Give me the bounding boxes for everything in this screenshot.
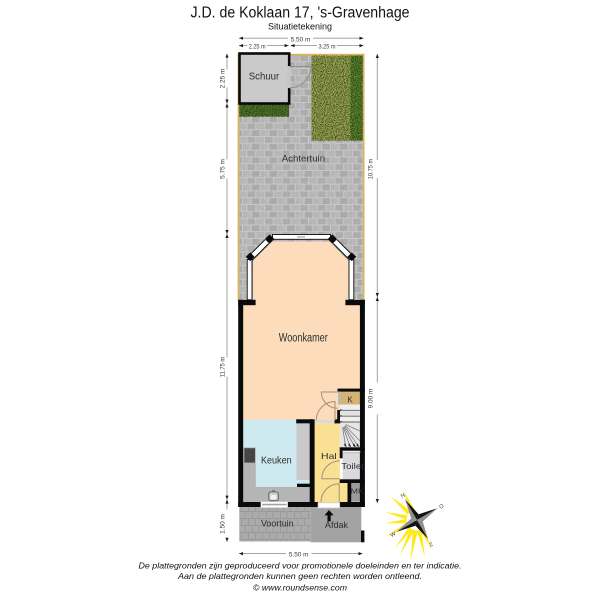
svg-text:5.75 m: 5.75 m [220, 159, 227, 179]
svg-text:9.00 m: 9.00 m [367, 389, 374, 409]
svg-text:2.25 m: 2.25 m [249, 44, 266, 51]
svg-text:Achtertuin: Achtertuin [282, 154, 325, 165]
svg-text:© www.roundsense.com: © www.roundsense.com [253, 583, 347, 593]
svg-text:MK: MK [351, 486, 364, 495]
svg-text:Hal: Hal [321, 451, 337, 461]
svg-text:1.50 m: 1.50 m [220, 514, 227, 534]
svg-text:Aan de plattegronden kunnen ge: Aan de plattegronden kunnen geen rechten… [177, 571, 422, 581]
svg-text:Schuur: Schuur [249, 71, 280, 82]
svg-text:Woonkamer: Woonkamer [279, 333, 328, 345]
svg-text:Situatietekening: Situatietekening [268, 21, 332, 31]
svg-text:10.75 m: 10.75 m [367, 159, 374, 180]
svg-text:J.D. de Koklaan 17, 's-Gravenh: J.D. de Koklaan 17, 's-Gravenhage [191, 4, 410, 21]
svg-text:Afdak: Afdak [325, 520, 349, 530]
svg-text:Voortuin: Voortuin [261, 519, 294, 529]
svg-text:5.50 m: 5.50 m [289, 551, 309, 558]
svg-text:11.75 m: 11.75 m [220, 357, 227, 378]
svg-text:5.50 m: 5.50 m [291, 36, 311, 43]
svg-text:Toilet: Toilet [341, 461, 365, 471]
svg-text:De plattegronden zijn geproduc: De plattegronden zijn geproduceerd voor … [139, 561, 462, 571]
svg-text:3.25 m: 3.25 m [319, 44, 336, 51]
svg-text:Keuken: Keuken [261, 456, 292, 467]
svg-text:2.25 m: 2.25 m [220, 69, 227, 89]
svg-text:K: K [347, 396, 353, 405]
